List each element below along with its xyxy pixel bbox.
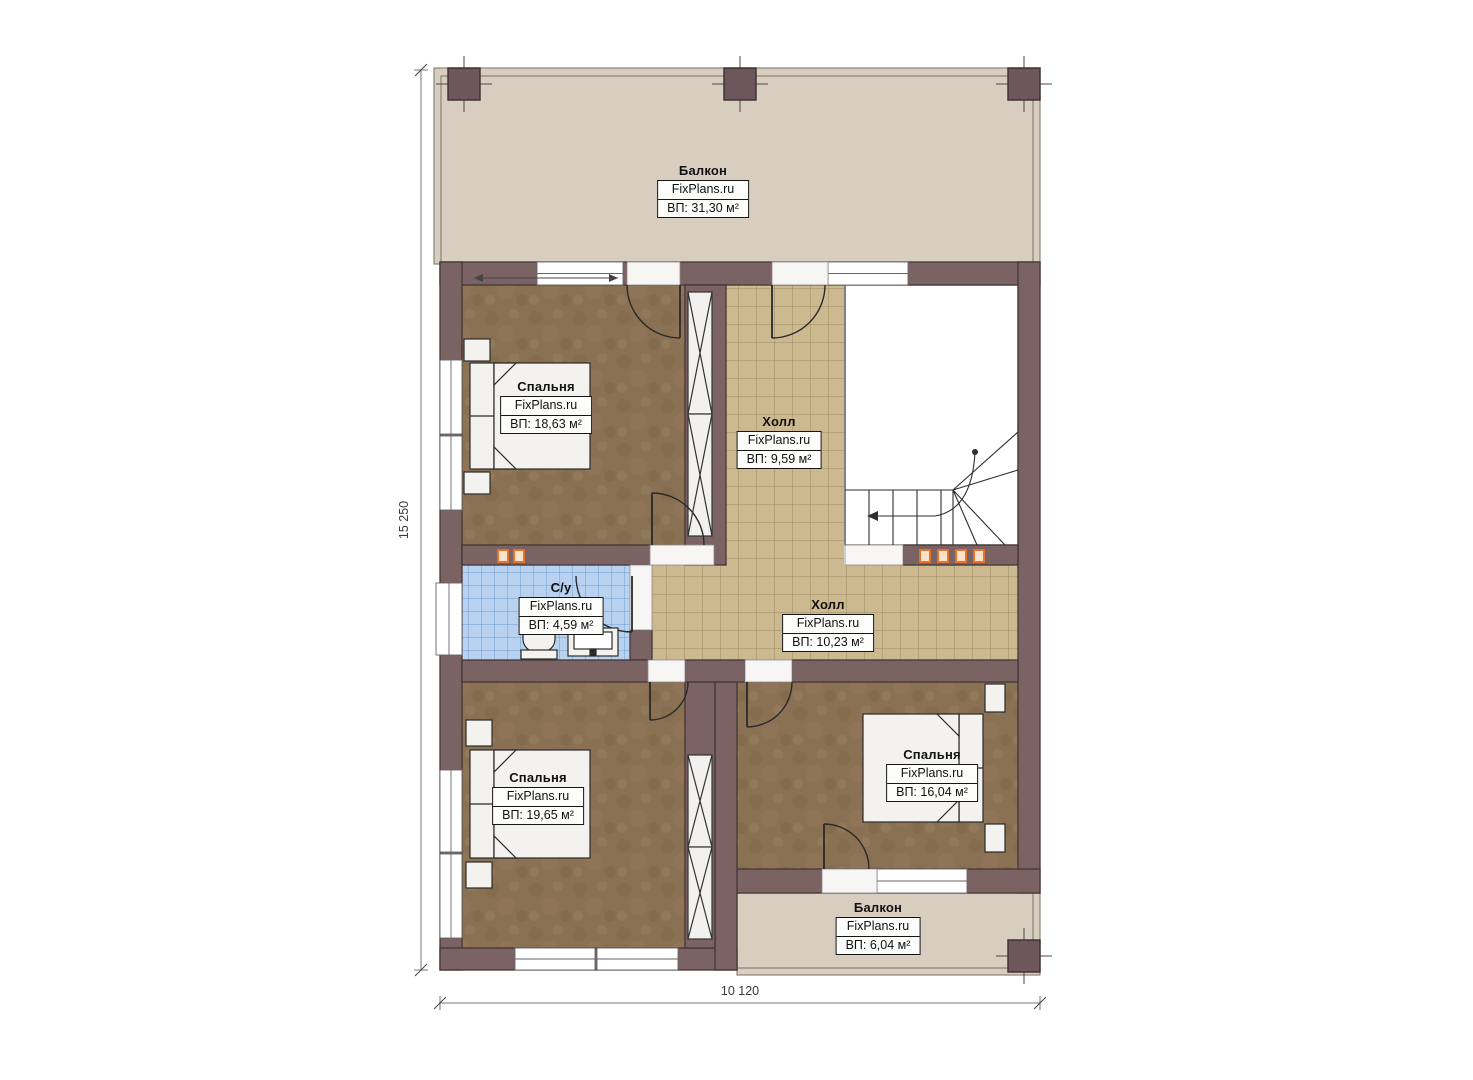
room-name: Холл xyxy=(737,414,822,429)
door-opening xyxy=(630,565,652,630)
room-label-balcony-bottom: Балкон FixPlans.ru ВП: 6,04 м² xyxy=(836,900,921,955)
room-info-box: FixPlans.ru ВП: 18,63 м² xyxy=(500,396,592,434)
wall-marker-icon xyxy=(920,550,930,562)
stairs-opening xyxy=(845,545,903,565)
wall-bedrooms-divider xyxy=(715,682,737,970)
stairwell-void xyxy=(845,285,1018,545)
door-opening xyxy=(822,869,877,893)
dimension-label-horizontal: 10 120 xyxy=(721,984,759,998)
watermark: FixPlans.ru xyxy=(837,918,920,937)
wall-bathroom-top xyxy=(462,545,652,565)
floor-plan-canvas: Балкон FixPlans.ru ВП: 31,30 м² Спальня … xyxy=(0,0,1473,1080)
door-opening xyxy=(627,262,680,285)
room-label-bedroom-top-left: Спальня FixPlans.ru ВП: 18,63 м² xyxy=(500,379,592,434)
door-opening xyxy=(745,660,792,682)
wall-marker-icon xyxy=(956,550,966,562)
watermark: FixPlans.ru xyxy=(738,432,821,451)
wall-right xyxy=(1018,262,1040,893)
room-area: ВП: 9,59 м² xyxy=(738,451,821,469)
room-label-hall-lower: Холл FixPlans.ru ВП: 10,23 м² xyxy=(782,597,874,652)
nightstand xyxy=(464,339,490,361)
room-area: ВП: 18,63 м² xyxy=(501,416,591,434)
watermark: FixPlans.ru xyxy=(887,765,977,784)
room-label-balcony-top: Балкон FixPlans.ru ВП: 31,30 м² xyxy=(657,163,749,218)
room-area: ВП: 6,04 м² xyxy=(837,937,920,955)
wall-marker-icon xyxy=(514,550,524,562)
room-name: С/у xyxy=(519,580,604,595)
watermark: FixPlans.ru xyxy=(783,615,873,634)
nightstand xyxy=(466,720,492,746)
watermark: FixPlans.ru xyxy=(493,788,583,807)
room-area: ВП: 10,23 м² xyxy=(783,634,873,652)
wall-top xyxy=(440,262,1040,285)
room-name: Спальня xyxy=(886,747,978,762)
nightstand xyxy=(466,862,492,888)
room-label-hall-upper: Холл FixPlans.ru ВП: 9,59 м² xyxy=(737,414,822,469)
wall-corridor-mid xyxy=(685,660,745,682)
watermark: FixPlans.ru xyxy=(658,181,748,200)
room-label-bedroom-bottom-left: Спальня FixPlans.ru ВП: 19,65 м² xyxy=(492,770,584,825)
room-name: Спальня xyxy=(492,770,584,785)
floor-plan-drawing xyxy=(0,0,1473,1080)
room-area: ВП: 19,65 м² xyxy=(493,807,583,825)
room-info-box: FixPlans.ru ВП: 10,23 м² xyxy=(782,614,874,652)
wall-marker-icon xyxy=(974,550,984,562)
room-label-bedroom-bottom-right: Спальня FixPlans.ru ВП: 16,04 м² xyxy=(886,747,978,802)
room-area: ВП: 31,30 м² xyxy=(658,200,748,218)
room-name: Холл xyxy=(782,597,874,612)
room-info-box: FixPlans.ru ВП: 6,04 м² xyxy=(836,917,921,955)
room-info-box: FixPlans.ru ВП: 4,59 м² xyxy=(519,597,604,635)
room-area: ВП: 16,04 м² xyxy=(887,784,977,802)
room-info-box: FixPlans.ru ВП: 16,04 м² xyxy=(886,764,978,802)
dimension-label-vertical: 15 250 xyxy=(397,501,411,539)
nightstand xyxy=(464,472,490,494)
room-name: Балкон xyxy=(836,900,921,915)
room-info-box: FixPlans.ru ВП: 9,59 м² xyxy=(737,431,822,469)
wall-corridor-left xyxy=(462,660,650,682)
wall-marker-icon xyxy=(498,550,508,562)
room-info-box: FixPlans.ru ВП: 31,30 м² xyxy=(657,180,749,218)
room-info-box: FixPlans.ru ВП: 19,65 м² xyxy=(492,787,584,825)
door-opening xyxy=(648,660,685,682)
door-opening xyxy=(772,262,828,285)
room-name: Спальня xyxy=(500,379,592,394)
wall-bathroom-right xyxy=(630,630,652,660)
nightstand xyxy=(985,684,1005,712)
room-label-bathroom: С/у FixPlans.ru ВП: 4,59 м² xyxy=(519,580,604,635)
door-opening xyxy=(650,545,714,565)
room-name: Балкон xyxy=(657,163,749,178)
wall-marker-icon xyxy=(938,550,948,562)
room-area: ВП: 4,59 м² xyxy=(520,617,603,635)
watermark: FixPlans.ru xyxy=(501,397,591,416)
watermark: FixPlans.ru xyxy=(520,598,603,617)
nightstand xyxy=(985,824,1005,852)
wall-corridor-right xyxy=(792,660,1018,682)
